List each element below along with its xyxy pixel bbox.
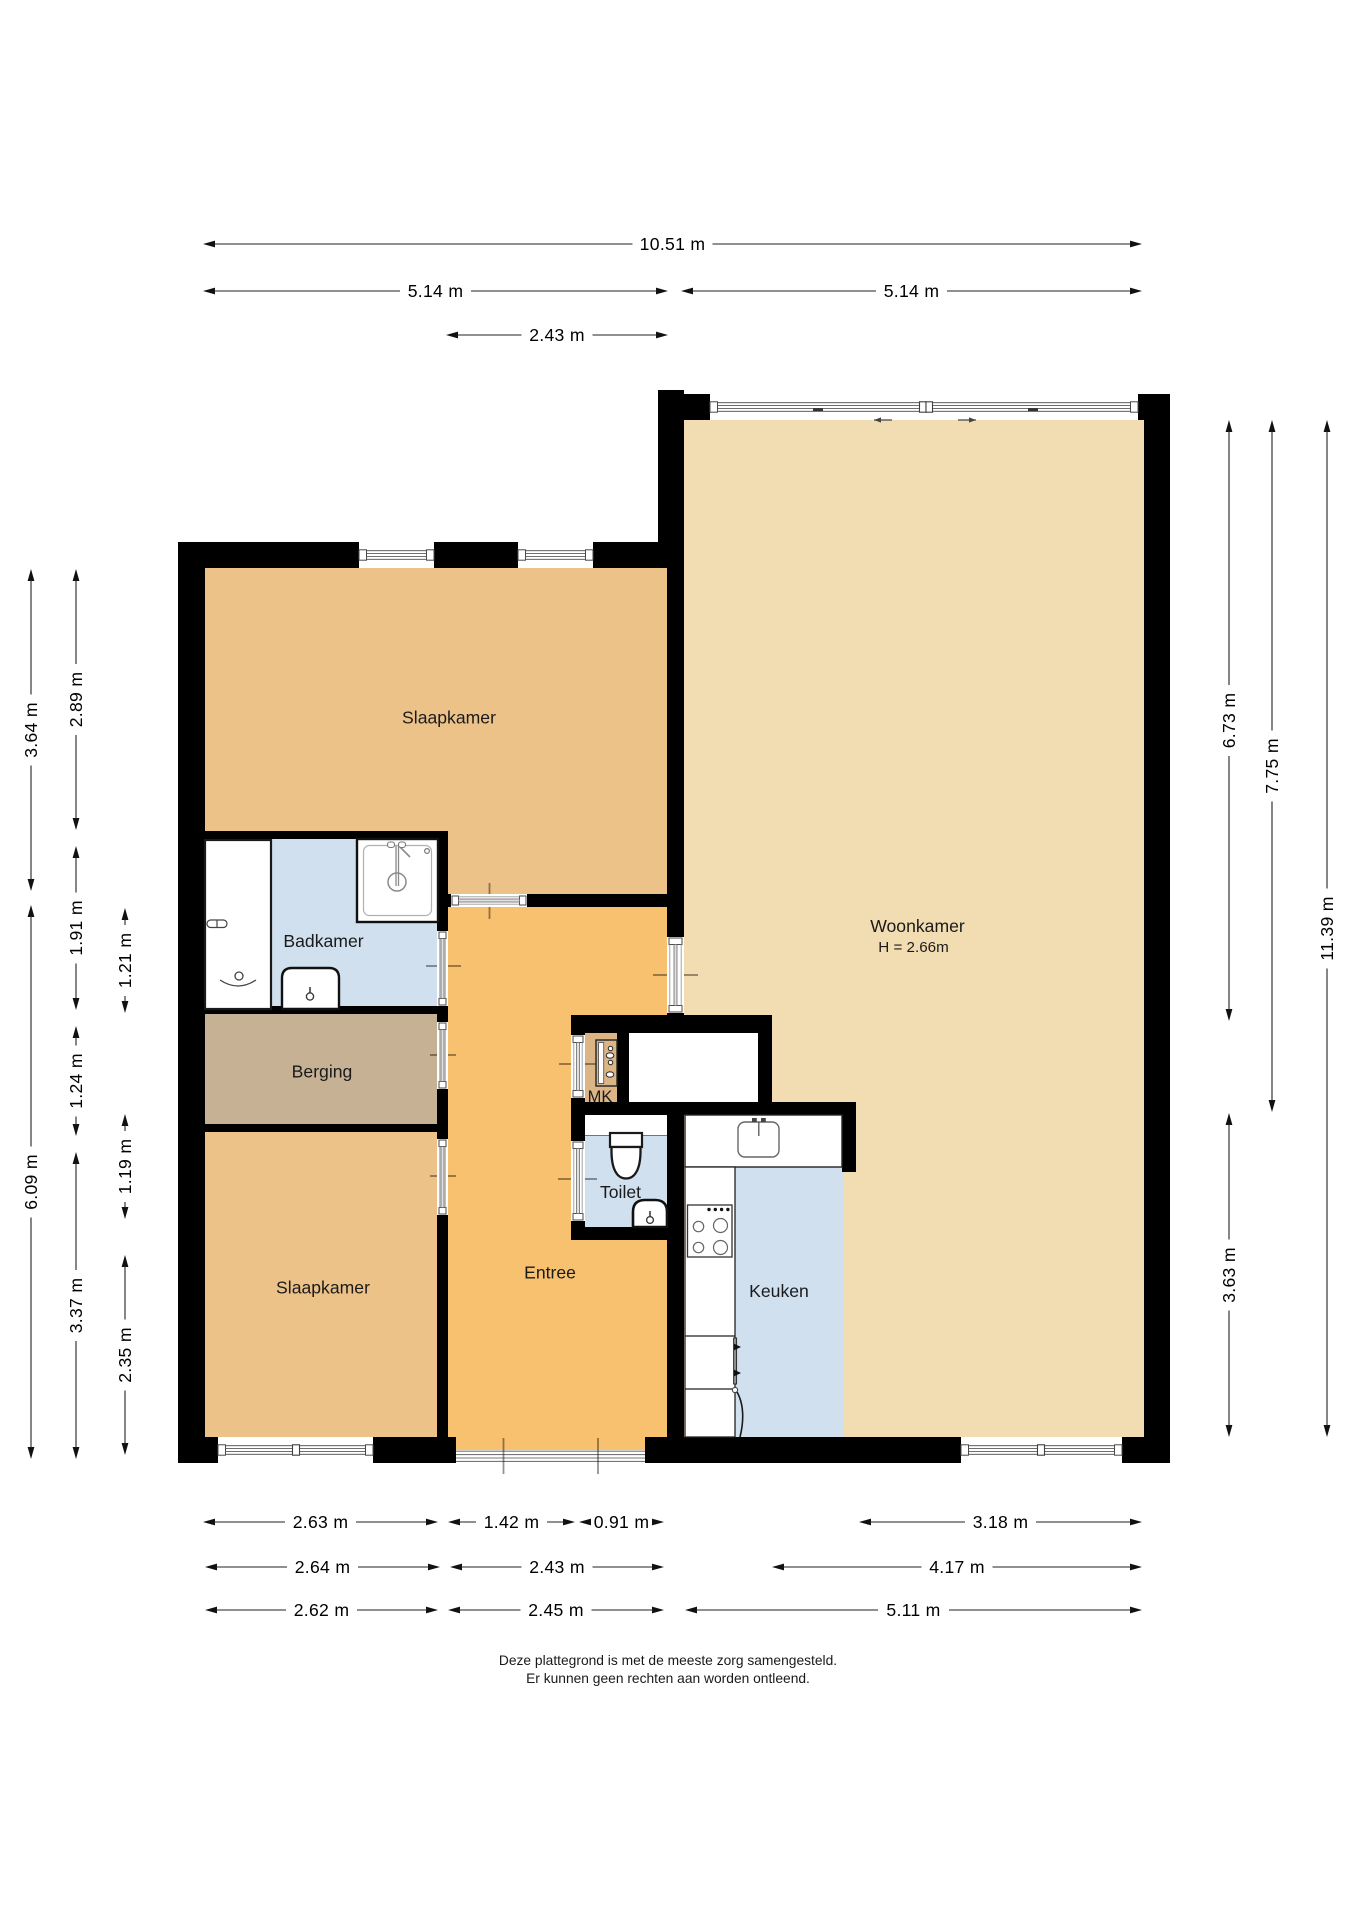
svg-text:11.39 m: 11.39 m <box>1317 896 1337 960</box>
svg-text:1.24 m: 1.24 m <box>66 1053 86 1109</box>
svg-text:4.17 m: 4.17 m <box>929 1557 985 1577</box>
svg-text:H = 2.66m: H = 2.66m <box>878 939 949 956</box>
svg-text:0.91 m: 0.91 m <box>594 1512 650 1532</box>
svg-text:Woonkamer: Woonkamer <box>870 916 965 936</box>
svg-text:Er kunnen geen rechten aan wor: Er kunnen geen rechten aan worden ontlee… <box>526 1671 810 1686</box>
svg-text:3.37 m: 3.37 m <box>66 1278 86 1334</box>
svg-text:Keuken: Keuken <box>749 1281 809 1301</box>
svg-text:2.62 m: 2.62 m <box>294 1600 350 1620</box>
svg-text:5.14 m: 5.14 m <box>884 281 940 301</box>
svg-text:6.73 m: 6.73 m <box>1219 693 1239 749</box>
svg-text:1.21 m: 1.21 m <box>115 933 135 989</box>
svg-text:3.63 m: 3.63 m <box>1219 1247 1239 1303</box>
svg-text:Toilet: Toilet <box>600 1182 641 1202</box>
svg-text:Badkamer: Badkamer <box>283 931 363 951</box>
svg-text:Entree: Entree <box>524 1263 576 1283</box>
svg-text:MK: MK <box>588 1088 613 1106</box>
svg-text:Slaapkamer: Slaapkamer <box>402 708 496 728</box>
svg-text:2.64 m: 2.64 m <box>295 1557 351 1577</box>
svg-text:Deze plattegrond is met de mee: Deze plattegrond is met de meeste zorg s… <box>499 1653 837 1668</box>
svg-text:10.51 m: 10.51 m <box>640 234 706 254</box>
svg-text:3.64 m: 3.64 m <box>21 702 41 758</box>
svg-text:2.35 m: 2.35 m <box>115 1327 135 1383</box>
svg-text:Slaapkamer: Slaapkamer <box>276 1278 370 1298</box>
svg-text:7.75 m: 7.75 m <box>1262 738 1282 794</box>
svg-text:1.19 m: 1.19 m <box>115 1139 135 1195</box>
svg-text:1.42 m: 1.42 m <box>484 1512 540 1532</box>
svg-text:2.43 m: 2.43 m <box>529 1557 585 1577</box>
svg-text:5.11 m: 5.11 m <box>886 1600 940 1620</box>
svg-text:2.63 m: 2.63 m <box>293 1512 349 1532</box>
svg-text:5.14 m: 5.14 m <box>408 281 464 301</box>
svg-text:2.45 m: 2.45 m <box>528 1600 584 1620</box>
svg-text:1.91 m: 1.91 m <box>66 900 86 956</box>
svg-text:6.09 m: 6.09 m <box>21 1154 41 1210</box>
svg-text:2.43 m: 2.43 m <box>529 325 585 345</box>
svg-text:3.18 m: 3.18 m <box>973 1512 1029 1532</box>
svg-text:2.89 m: 2.89 m <box>66 672 86 728</box>
svg-text:Berging: Berging <box>292 1062 353 1082</box>
